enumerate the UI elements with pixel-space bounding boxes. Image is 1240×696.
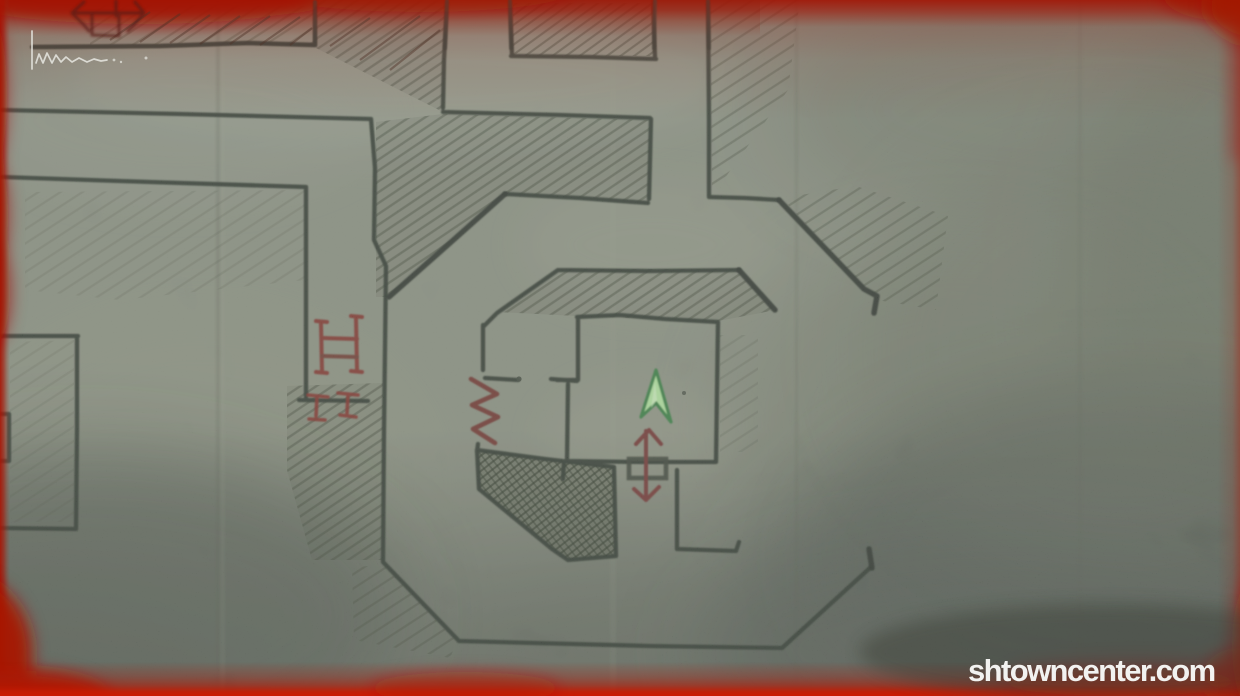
svg-text:shtowncenter.com: shtowncenter.com [968, 653, 1215, 688]
